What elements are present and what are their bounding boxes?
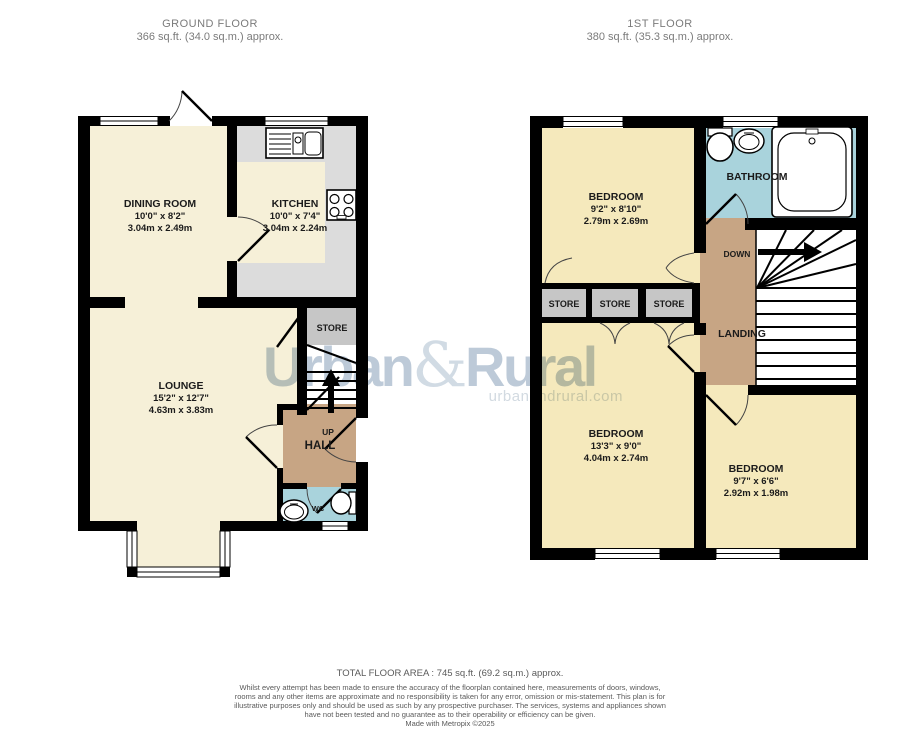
- wc-basin-icon: [280, 500, 308, 522]
- bedroom-1-dims-imperial: 9'2" x 8'10": [591, 204, 642, 215]
- bedroom-1-dims-metric: 2.79m x 2.69m: [584, 216, 648, 227]
- dining-room-dims-metric: 3.04m x 2.49m: [128, 223, 192, 234]
- lounge-dims-metric: 4.63m x 3.83m: [149, 405, 213, 416]
- dining-room-name: DINING ROOM: [124, 198, 197, 210]
- bedroom-3-dims-metric: 2.92m x 1.98m: [724, 488, 788, 499]
- total-floor-area: TOTAL FLOOR AREA : 745 sq.ft. (69.2 sq.m…: [150, 668, 750, 679]
- bedroom-3-dims-imperial: 9'7" x 6'6": [733, 476, 778, 487]
- first-floor-plan: BEDROOM 9'2" x 8'10" 2.79m x 2.69m BATHR…: [530, 116, 868, 560]
- landing-name: LANDING: [718, 328, 766, 340]
- credit-text: Made with Metropix ©2025: [150, 719, 750, 728]
- floorplan-canvas: GROUND FLOOR 366 sq.ft. (34.0 sq.m.) app…: [0, 0, 900, 729]
- kitchen-dims-metric: 3.04m x 2.24m: [263, 223, 327, 234]
- hob-icon: [327, 190, 356, 220]
- disclaimer-text: Whilst every attempt has been made to en…: [229, 683, 671, 719]
- kitchen-dims-imperial: 10'0" x 7'4": [270, 211, 321, 222]
- floorplan-drawing: DINING ROOM 10'0" x 8'2" 3.04m x 2.49m K…: [0, 0, 900, 729]
- dining-room-dims-imperial: 10'0" x 8'2": [135, 211, 186, 222]
- stairs-down-label: DOWN: [724, 249, 751, 259]
- bedroom-1-name: BEDROOM: [589, 191, 644, 203]
- bedroom-2-dims-metric: 4.04m x 2.74m: [584, 453, 648, 464]
- wc-name: WC: [312, 504, 325, 513]
- stairs-up-label: UP: [322, 427, 334, 437]
- hall-name: HALL: [305, 440, 336, 452]
- bathroom-name: BATHROOM: [726, 171, 787, 183]
- store-3-name: STORE: [654, 299, 685, 309]
- bedroom-2-dims-imperial: 13'3" x 9'0": [591, 441, 642, 452]
- store-2-name: STORE: [600, 299, 631, 309]
- bay-window-fill: [137, 521, 220, 567]
- bedroom-3-name: BEDROOM: [729, 463, 784, 475]
- bedroom-2-name: BEDROOM: [589, 428, 644, 440]
- footer: TOTAL FLOOR AREA : 745 sq.ft. (69.2 sq.m…: [150, 668, 750, 728]
- landing-fill: [700, 218, 756, 385]
- ground-floor-plan: DINING ROOM 10'0" x 8'2" 3.04m x 2.49m K…: [78, 91, 368, 577]
- sink-icon: [266, 128, 323, 158]
- store-1-name: STORE: [549, 299, 580, 309]
- wc-toilet-icon: [331, 492, 356, 514]
- entrance-door-top: [169, 91, 212, 121]
- store-name: STORE: [317, 323, 348, 333]
- basin-icon: [734, 129, 764, 153]
- kitchen-name: KITCHEN: [272, 198, 319, 210]
- ground-floor-room-fills: [90, 126, 356, 567]
- toilet-icon: [707, 128, 733, 161]
- lounge-name: LOUNGE: [159, 380, 204, 392]
- lounge-dims-imperial: 15'2" x 12'7": [153, 393, 209, 404]
